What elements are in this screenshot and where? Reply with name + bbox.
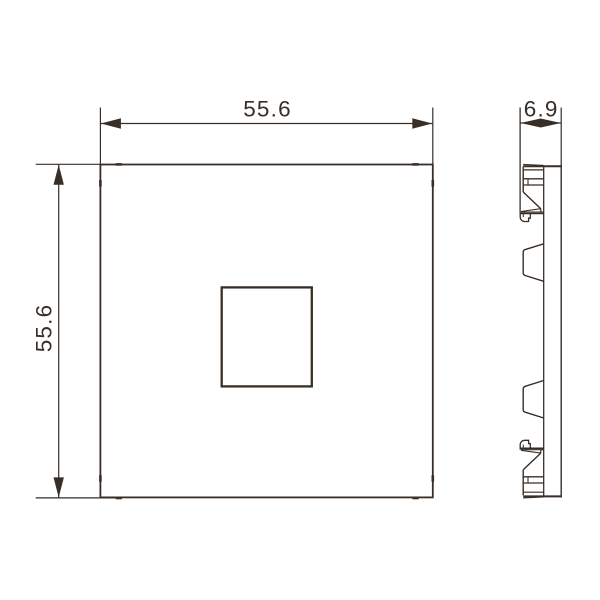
svg-text:55.6: 55.6 [243,96,292,121]
svg-text:6.9: 6.9 [524,96,559,121]
svg-text:55.6: 55.6 [32,304,57,353]
